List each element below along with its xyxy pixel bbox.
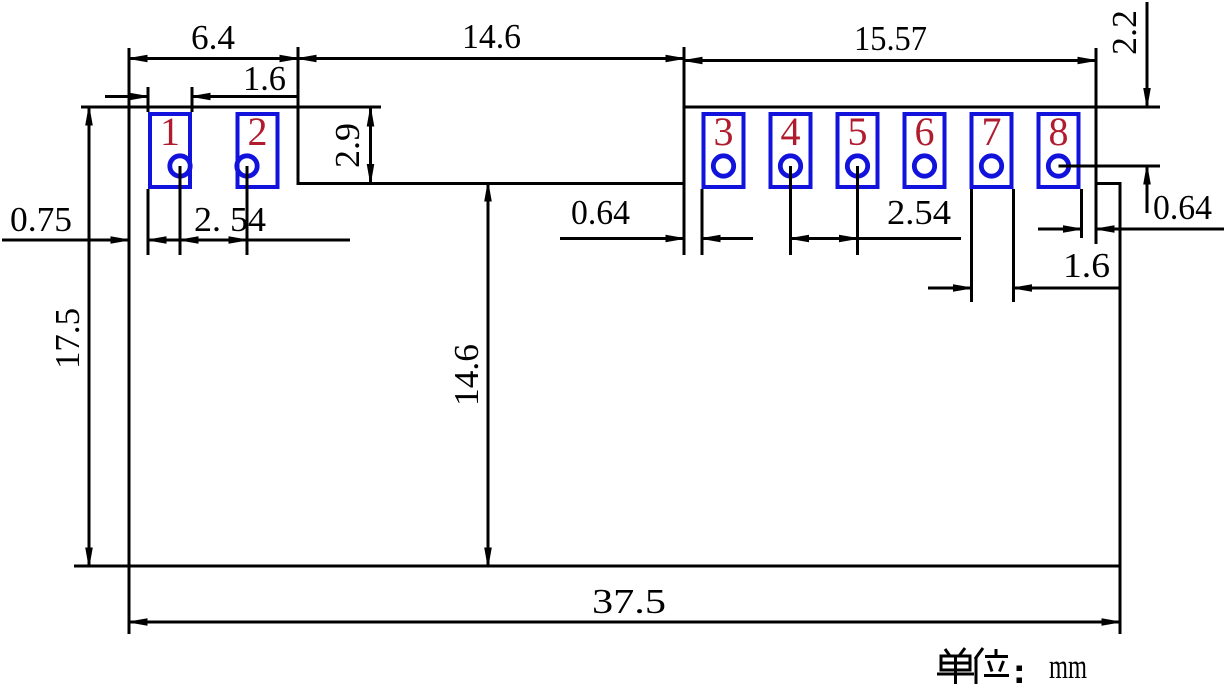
svg-text:14.6: 14.6 xyxy=(447,344,486,406)
svg-text:1: 1 xyxy=(160,109,180,154)
svg-text:1.6: 1.6 xyxy=(243,59,286,98)
svg-text:14.6: 14.6 xyxy=(462,17,521,56)
svg-text:0.64: 0.64 xyxy=(571,193,630,232)
svg-text:2.54: 2.54 xyxy=(887,193,951,232)
svg-text:4: 4 xyxy=(781,109,801,154)
svg-text:6.4: 6.4 xyxy=(191,18,235,57)
svg-text:3: 3 xyxy=(714,109,734,154)
svg-text:7: 7 xyxy=(982,109,1002,154)
svg-text:2.2: 2.2 xyxy=(1105,10,1144,55)
svg-text:8: 8 xyxy=(1049,109,1069,154)
svg-text:17.5: 17.5 xyxy=(48,308,87,369)
svg-text:0.64: 0.64 xyxy=(1153,188,1212,227)
svg-text:15.57: 15.57 xyxy=(854,19,927,58)
svg-text:2. 54: 2. 54 xyxy=(194,200,266,239)
svg-text:2.9: 2.9 xyxy=(328,123,367,168)
svg-text:37.5: 37.5 xyxy=(592,582,666,621)
svg-text:mm: mm xyxy=(1049,647,1087,686)
svg-text:1.6: 1.6 xyxy=(1063,246,1110,285)
svg-text:6: 6 xyxy=(915,109,935,154)
svg-text:5: 5 xyxy=(848,109,868,154)
svg-text:2: 2 xyxy=(248,109,268,154)
svg-text:0.75: 0.75 xyxy=(10,200,72,239)
